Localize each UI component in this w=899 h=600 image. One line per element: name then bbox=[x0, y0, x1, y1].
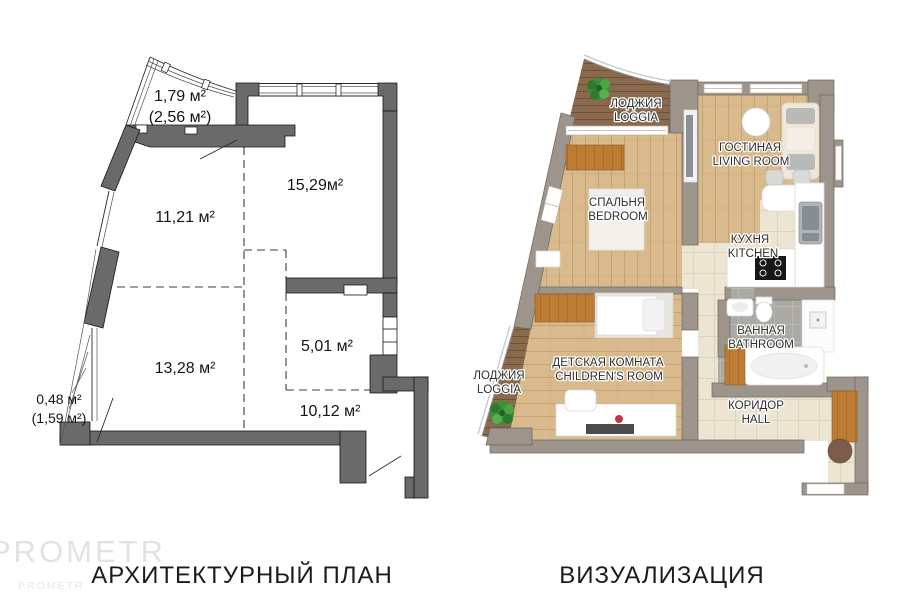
round-table bbox=[742, 108, 770, 136]
wall-bottom-step bbox=[340, 431, 366, 483]
wall-left-band-2 bbox=[84, 247, 119, 328]
wall-left-band-1 bbox=[101, 125, 140, 191]
label-kitchen-ru: КУХНЯ bbox=[731, 234, 769, 246]
wall-notch-2 bbox=[185, 127, 197, 134]
area-loggia-top-1: 1,79 м² bbox=[154, 88, 207, 105]
label-loggia-top-ru: ЛОДЖИЯ bbox=[610, 98, 661, 110]
label-bedroom-en: BEDROOM bbox=[588, 211, 647, 223]
left-plan-title: АРХИТЕКТУРНЫЙ ПЛАН bbox=[91, 561, 393, 589]
label-loggia-left-en: LOGGIA bbox=[477, 384, 521, 396]
entry-wardrobe bbox=[832, 391, 857, 442]
label-hall-en: HALL bbox=[742, 414, 771, 426]
right-plan: ЛОДЖИЯ LOGGIA ГОСТИНАЯ LIVING ROOM СПАЛЬ… bbox=[473, 55, 868, 495]
label-hall-ru: КОРИДОР bbox=[728, 400, 784, 412]
plant-loggia-left bbox=[490, 401, 514, 425]
wall-children-hall-2 bbox=[682, 357, 698, 440]
wall-children-hall-1 bbox=[682, 293, 698, 330]
toilet bbox=[756, 297, 772, 322]
bath-cabinet bbox=[725, 345, 745, 385]
wall-left-bottom bbox=[486, 428, 532, 445]
area-kitchen: 5,01 м² bbox=[301, 338, 354, 355]
label-living-en: LIVING ROOM bbox=[713, 156, 790, 168]
bedroom-wardrobe bbox=[566, 145, 624, 170]
wall-corner-top-right bbox=[378, 83, 397, 111]
wall-niche bbox=[344, 285, 367, 295]
children-bed bbox=[595, 293, 673, 338]
floorplan-canvas: 1,79 м² (2,56 м²) 15,29м² 11,21 м² 5,01 … bbox=[0, 0, 899, 600]
label-bedroom-ru: СПАЛЬНЯ bbox=[589, 197, 645, 209]
bar-chair-1 bbox=[766, 170, 783, 185]
label-children-ru: ДЕТСКАЯ КОМНАТА bbox=[552, 357, 663, 369]
wall-kitchen-top bbox=[286, 278, 397, 293]
area-bedroom: 11,21 м² bbox=[155, 209, 215, 226]
wall-bottom bbox=[60, 431, 340, 445]
label-loggia-top-en: LOGGIA bbox=[614, 112, 658, 124]
label-bathroom-en: BATHROOM bbox=[728, 339, 794, 351]
entry-door-gap bbox=[807, 484, 844, 494]
shaft bbox=[383, 317, 397, 355]
area-living: 15,29м² bbox=[287, 177, 344, 194]
children-wardrobe bbox=[535, 294, 595, 322]
floorplan-comparison-page: 1,79 м² (2,56 м²) 15,29м² 11,21 м² 5,01 … bbox=[0, 0, 899, 600]
wall-right-mid bbox=[383, 293, 397, 317]
label-kitchen-en: KITCHEN bbox=[728, 248, 778, 260]
area-loggia-left-1: 0,48 м² bbox=[36, 391, 82, 407]
left-plan: 1,79 м² (2,56 м²) 15,29м² 11,21 м² 5,01 … bbox=[32, 57, 428, 498]
watermark-line2: PROMETR bbox=[18, 580, 85, 592]
label-loggia-left-ru: ЛОДЖИЯ bbox=[473, 370, 524, 382]
door-swings bbox=[97, 140, 401, 476]
wall-right-band bbox=[414, 377, 428, 498]
label-children-en: CHILDREN'S ROOM bbox=[555, 371, 663, 383]
children-chair bbox=[565, 390, 596, 411]
bedroom-bench bbox=[536, 251, 560, 267]
wall-top-left-bar bbox=[126, 125, 295, 147]
plant-loggia-top bbox=[587, 78, 610, 100]
area-loggia-top-2: (2,56 м²) bbox=[149, 109, 212, 126]
wall-bottom-right-plan bbox=[490, 440, 804, 453]
entry-pouf bbox=[828, 439, 852, 463]
bath-door-gap bbox=[731, 288, 754, 299]
area-loggia-left-2: (1,59 м²) bbox=[32, 410, 87, 426]
window-right-jut bbox=[836, 146, 842, 180]
right-plan-title: ВИЗУАЛИЗАЦИЯ bbox=[559, 562, 765, 589]
area-children: 13,28 м² bbox=[155, 360, 216, 377]
wall-right-upper bbox=[383, 111, 397, 283]
top-window bbox=[259, 84, 378, 97]
bathtub bbox=[744, 347, 824, 385]
tv-unit bbox=[684, 110, 697, 182]
area-hall: 10,12 м² bbox=[300, 403, 361, 420]
wall-foot bbox=[405, 477, 414, 498]
label-bathroom-ru: ВАННАЯ bbox=[737, 325, 785, 337]
label-living-ru: ГОСТИНАЯ bbox=[719, 142, 781, 154]
